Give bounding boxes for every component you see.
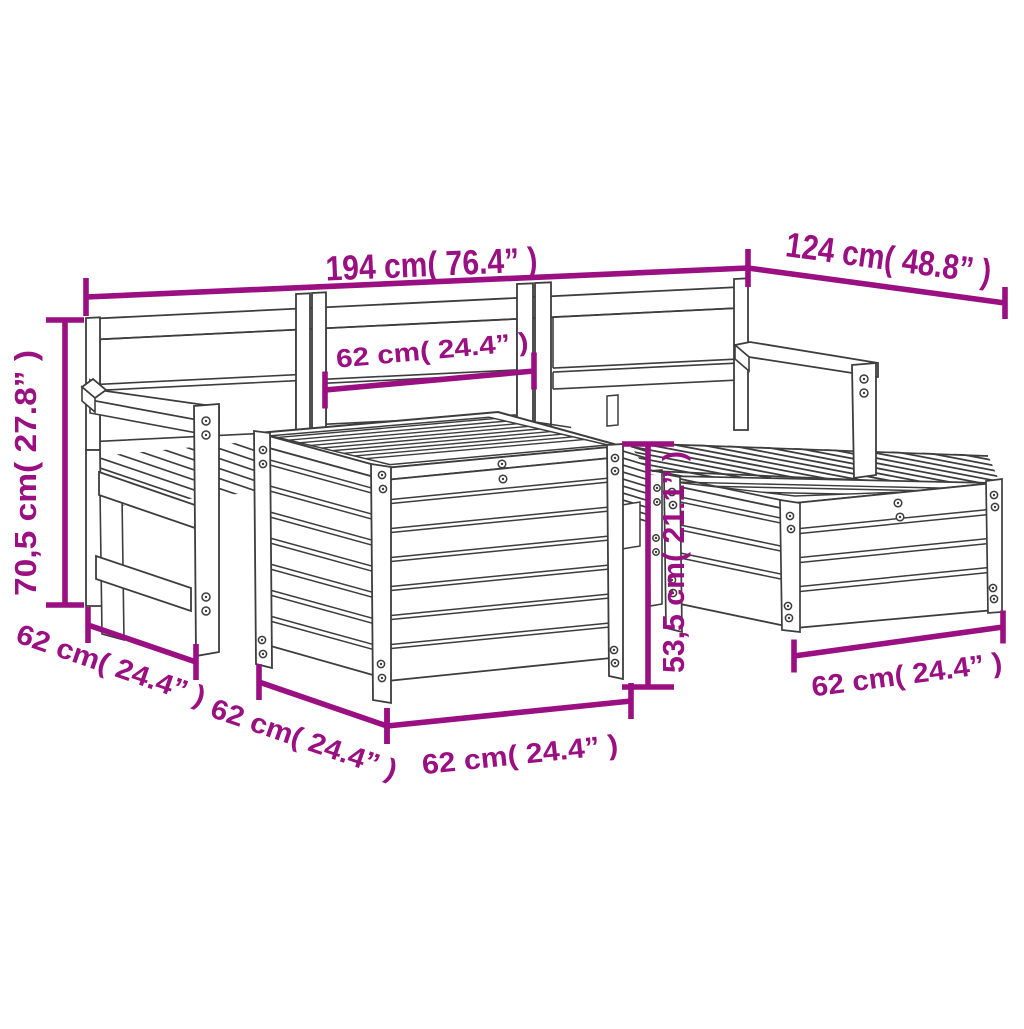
svg-text:70,5 cm( 27.8” ): 70,5 cm( 27.8” ) [8, 350, 43, 596]
svg-text:53,5 cm( 21.1” ): 53,5 cm( 21.1” ) [656, 451, 691, 673]
